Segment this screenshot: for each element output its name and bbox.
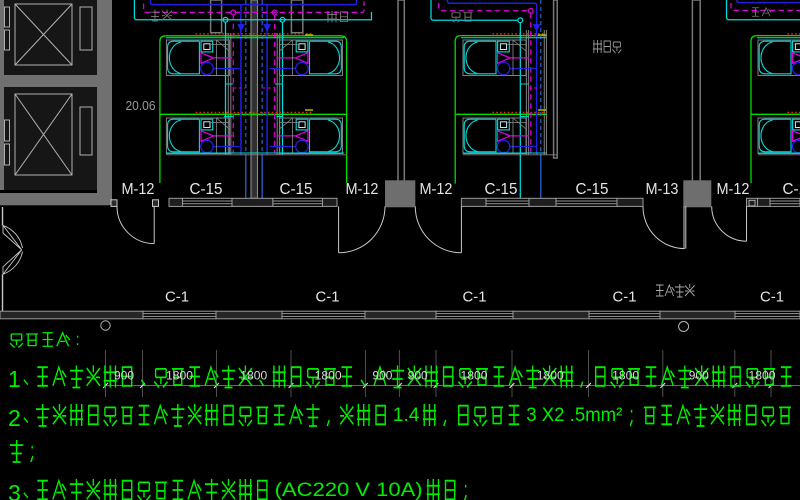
- svg-text:1800: 1800: [166, 369, 193, 383]
- svg-text:1: 1: [8, 366, 21, 392]
- svg-text:(AC220 V 10A): (AC220 V 10A): [275, 480, 423, 500]
- svg-text:1800: 1800: [612, 369, 639, 383]
- svg-text:900: 900: [372, 369, 392, 383]
- svg-text:C-15: C-15: [280, 181, 313, 198]
- svg-text:1800: 1800: [240, 369, 267, 383]
- svg-text:2: 2: [8, 405, 21, 431]
- svg-text:900: 900: [114, 369, 134, 383]
- svg-text:20.06: 20.06: [126, 98, 156, 113]
- svg-text:M-12: M-12: [717, 181, 750, 198]
- svg-text:1800: 1800: [461, 369, 488, 383]
- svg-text:C-1: C-1: [316, 289, 340, 306]
- svg-text:C-15: C-15: [485, 181, 518, 198]
- svg-text:1800: 1800: [749, 369, 776, 383]
- svg-text:1800: 1800: [315, 369, 342, 383]
- svg-text:C-15: C-15: [576, 181, 609, 198]
- svg-text:900: 900: [689, 369, 709, 383]
- svg-text:C-15: C-15: [190, 181, 223, 198]
- svg-text:C-1: C-1: [613, 289, 637, 306]
- svg-text:C-1: C-1: [760, 289, 784, 306]
- svg-text:C-1: C-1: [165, 289, 189, 306]
- svg-text:C-1: C-1: [463, 289, 487, 306]
- svg-text:1.4: 1.4: [393, 405, 420, 426]
- svg-text:M-12: M-12: [346, 181, 379, 198]
- svg-text:M-13: M-13: [646, 181, 679, 198]
- svg-text:M-12: M-12: [122, 181, 155, 198]
- svg-text:900: 900: [408, 369, 428, 383]
- svg-text:3 X2 .5mm²: 3 X2 .5mm²: [526, 405, 622, 426]
- svg-text:C-15: C-15: [783, 181, 800, 198]
- svg-text:1800: 1800: [537, 369, 564, 383]
- svg-text:M-12: M-12: [420, 181, 453, 198]
- svg-text:3: 3: [8, 480, 21, 500]
